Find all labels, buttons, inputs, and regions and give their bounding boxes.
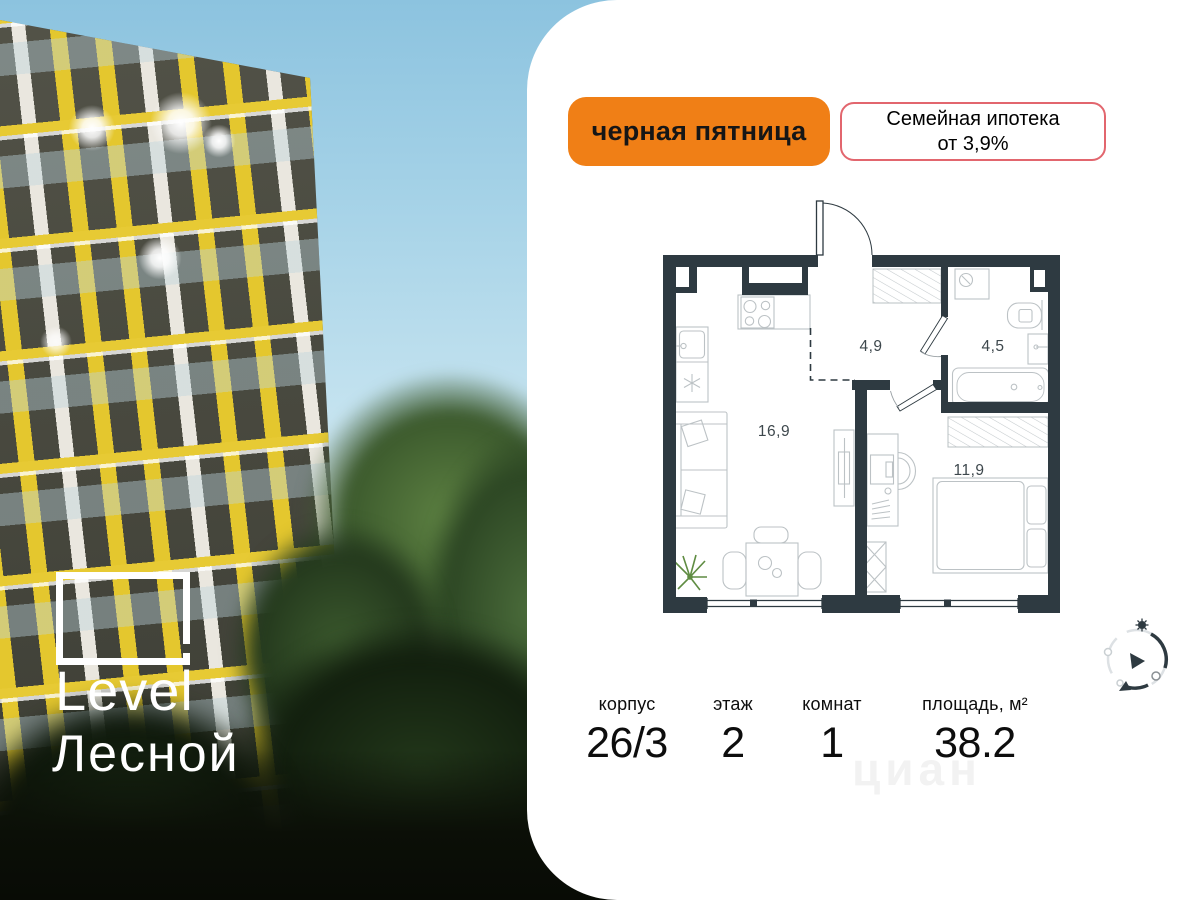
compass-dot — [1105, 649, 1112, 656]
wall-niches — [676, 267, 1045, 287]
stat-label: корпус — [567, 694, 687, 715]
logo-square — [60, 576, 187, 662]
compass-dot — [1152, 672, 1160, 680]
compass-dot — [1117, 680, 1123, 686]
stat-rooms: комнат 1 — [777, 694, 887, 768]
compass-pointer — [1130, 653, 1145, 669]
family-mortgage-line1: Семейная ипотека — [886, 107, 1059, 132]
sun-glint — [34, 320, 78, 364]
room-area-hallway: 4,9 — [859, 338, 882, 355]
sun-glint — [60, 96, 124, 160]
plan-rotate-compass-control[interactable] — [1093, 612, 1181, 700]
family-mortgage-badge: Семейная ипотека от 3,9% — [840, 102, 1106, 161]
stat-label: площадь, м² — [890, 694, 1060, 715]
kitchen-zone-dashed-line — [811, 328, 856, 380]
plant-icon — [675, 555, 707, 590]
floorplan: 16,9 4,9 4,5 11,9 — [650, 190, 1070, 630]
stat-label: комнат — [777, 694, 887, 715]
stat-value: 2 — [693, 719, 773, 768]
logo-subtitle: Лесной — [52, 725, 240, 783]
stat-label: этаж — [693, 694, 773, 715]
stat-building: корпус 26/3 — [567, 694, 687, 768]
room-area-bathroom: 4,5 — [981, 338, 1004, 355]
stat-floor: этаж 2 — [693, 694, 773, 768]
black-friday-badge: черная пятница — [568, 97, 830, 166]
fridge-asterisk-icon — [684, 374, 700, 392]
room-area-kitchen-living: 16,9 — [758, 423, 790, 440]
room-area-bedroom: 11,9 — [953, 462, 984, 479]
stat-area: площадь, м² 38.2 — [890, 694, 1060, 768]
family-mortgage-line2: от 3,9% — [938, 132, 1009, 157]
stat-value: 38.2 — [890, 719, 1060, 768]
closet-hatch-areas — [873, 269, 1048, 447]
sun-glint — [130, 228, 190, 288]
logo-title: Level — [55, 659, 194, 722]
entry-door-arc — [823, 203, 872, 255]
bathroom-door-leaf — [921, 316, 948, 355]
compass-arc — [1151, 634, 1166, 668]
stat-value: 26/3 — [567, 719, 687, 768]
entry-door-leaf — [817, 201, 824, 255]
stat-value: 1 — [777, 719, 887, 768]
level-lesnoy-logo: Level Лесной — [40, 560, 320, 800]
black-friday-label: черная пятница — [592, 116, 807, 147]
sun-glint — [196, 118, 242, 164]
bedroom-door-leaf — [897, 385, 937, 412]
listing-card: Level Лесной черная пятница Семейная ипо… — [0, 0, 1200, 900]
